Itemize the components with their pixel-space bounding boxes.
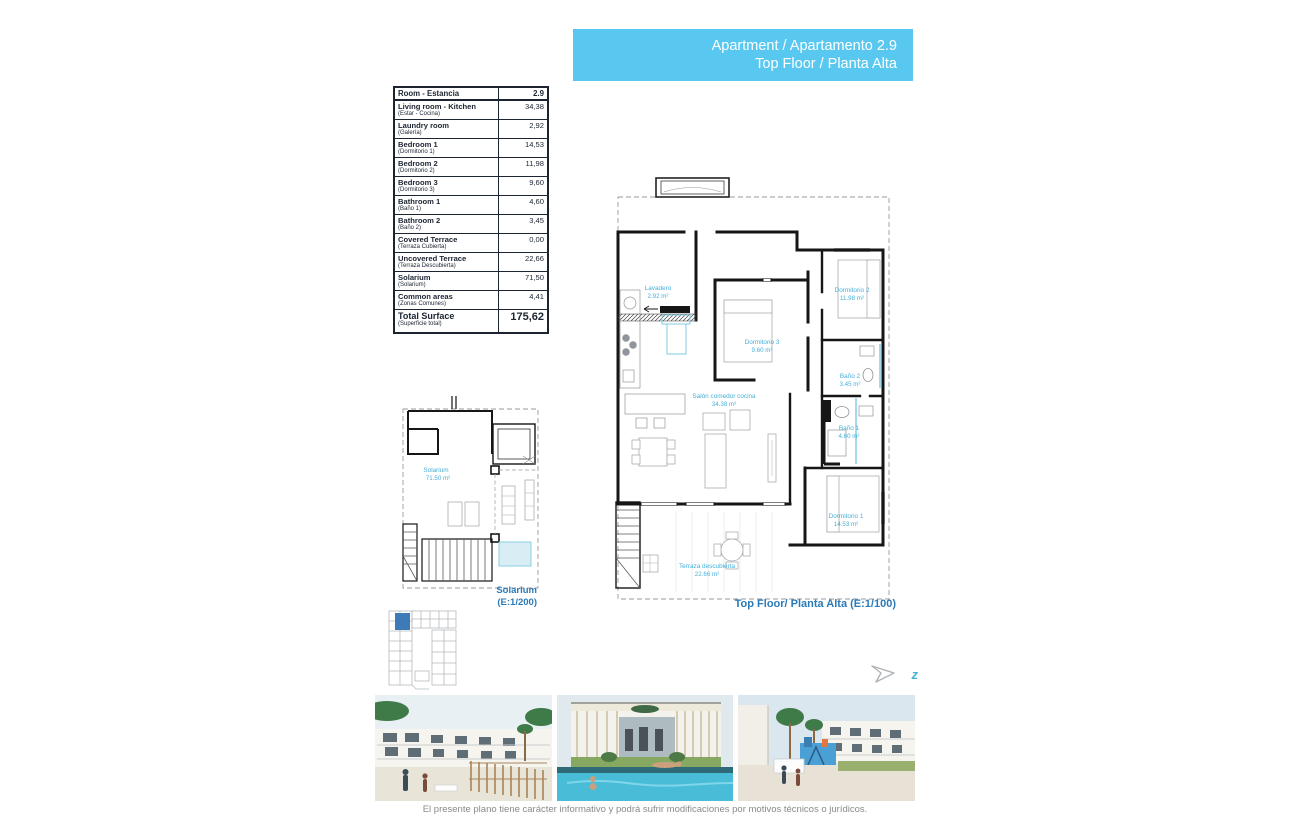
svg-text:Terraza descubierta: Terraza descubierta xyxy=(679,563,736,570)
north-letter: z xyxy=(912,667,919,682)
table-row: Bedroom 1 (Dormitorio 1) 14,53 xyxy=(394,139,548,158)
svg-text:Lavadero: Lavadero xyxy=(645,285,672,292)
total-sublabel: (Superficie total) xyxy=(398,321,495,328)
surface-table-total-row: Total Surface (Superficie total) 175,62 xyxy=(394,310,548,334)
table-row: Uncovered Terrace (Terraza Descubierta) … xyxy=(394,253,548,272)
svg-text:22.66 m²: 22.66 m² xyxy=(695,571,719,578)
room-sublabel: (Solarium) xyxy=(398,282,495,289)
room-area: 22,66 xyxy=(499,253,549,272)
room-sublabel: (Estar - Cocina) xyxy=(398,111,495,118)
room-name: Solarium xyxy=(398,273,495,282)
svg-text:Baño 1: Baño 1 xyxy=(839,425,860,432)
main-floor-plan: Lavadero 2.92 m² Dormitorio 3 9.60 m² Do… xyxy=(612,172,897,602)
room-sublabel: (Baño 2) xyxy=(398,225,495,232)
room-area: 11,98 xyxy=(499,158,549,177)
svg-text:Baño 2: Baño 2 xyxy=(840,373,861,380)
room-area: 71,50 xyxy=(499,272,549,291)
table-row: Laundry room (Galería) 2,92 xyxy=(394,120,548,139)
solarium-walls xyxy=(408,411,535,464)
svg-text:Salón comedor cocina: Salón comedor cocina xyxy=(692,393,756,400)
room-name: Living room - Kitchen xyxy=(398,102,495,111)
solarium-pool-edge xyxy=(499,542,531,566)
table-header-unit: 2.9 xyxy=(499,87,549,100)
table-row: Bedroom 2 (Dormitorio 2) 11,98 xyxy=(394,158,548,177)
table-row: Bathroom 1 (Baño 1) 4,60 xyxy=(394,196,548,215)
room-area: 34,38 xyxy=(499,100,549,120)
table-row: Common areas (Zonas Comunes) 4,41 xyxy=(394,291,548,310)
render-photos xyxy=(375,695,915,801)
solarium-furniture xyxy=(448,480,534,526)
key-plan-highlight xyxy=(395,613,410,630)
total-value: 175,62 xyxy=(499,310,549,334)
svg-text:2.92 m²: 2.92 m² xyxy=(648,293,669,300)
svg-text:Dormitorio 3: Dormitorio 3 xyxy=(745,339,780,346)
room-sublabel: (Dormitorio 1) xyxy=(398,149,495,156)
photo-playground xyxy=(738,695,915,801)
room-area: 14,53 xyxy=(499,139,549,158)
room-sublabel: (Terraza Descubierta) xyxy=(398,263,495,270)
room-name: Common areas xyxy=(398,292,495,301)
table-row: Solarium (Solarium) 71,50 xyxy=(394,272,548,291)
table-row: Bedroom 3 (Dormitorio 3) 9,60 xyxy=(394,177,548,196)
room-sublabel: (Terraza Cubierta) xyxy=(398,244,495,251)
room-sublabel: (Dormitorio 2) xyxy=(398,168,495,175)
svg-text:Dormitorio 1: Dormitorio 1 xyxy=(829,513,864,520)
table-row: Bathroom 2 (Baño 2) 3,45 xyxy=(394,215,548,234)
total-label: Total Surface xyxy=(398,311,495,321)
solarium-posts xyxy=(491,466,538,542)
laundry-fixtures xyxy=(644,306,690,354)
table-row: Living room - Kitchen (Estar - Cocina) 3… xyxy=(394,100,548,120)
room-sublabel: (Galería) xyxy=(398,130,495,137)
solarium-stairs xyxy=(403,524,492,581)
north-arrow-icon xyxy=(872,666,894,682)
disclaimer-text: El presente plano tiene carácter informa… xyxy=(375,804,915,815)
table-header-room: Room - Estancia xyxy=(394,87,499,100)
room-name: Bedroom 3 xyxy=(398,178,495,187)
terrace xyxy=(676,512,772,592)
solarium-plan: Solarium 71.50 m² xyxy=(390,396,548,592)
room-area: 0,00 xyxy=(499,234,549,253)
table-row: Covered Terrace (Terraza Cubierta) 0,00 xyxy=(394,234,548,253)
svg-text:Solarium: Solarium xyxy=(423,467,448,474)
room-area: 4,41 xyxy=(499,291,549,310)
surface-table: Room - Estancia 2.9 Living room - Kitche… xyxy=(393,86,549,334)
stairs xyxy=(616,502,640,588)
solarium-caption: Solarium (E:1/200) xyxy=(455,585,537,609)
room-name: Bathroom 2 xyxy=(398,216,495,225)
room-name: Laundry room xyxy=(398,121,495,130)
apartment-title: Apartment / Apartamento 2.9 xyxy=(712,37,897,55)
svg-text:9.60 m²: 9.60 m² xyxy=(752,347,773,354)
floor-plan-caption: Top Floor/ Planta Alta (E:1/100) xyxy=(700,598,896,610)
room-name: Bedroom 1 xyxy=(398,140,495,149)
svg-text:14.53 m²: 14.53 m² xyxy=(834,521,858,528)
svg-text:Dormitorio 2: Dormitorio 2 xyxy=(835,287,870,294)
room-name: Bedroom 2 xyxy=(398,159,495,168)
room-area: 3,45 xyxy=(499,215,549,234)
photo-pool-gym xyxy=(557,695,734,801)
svg-text:4.60 m²: 4.60 m² xyxy=(839,433,860,440)
room-sublabel: (Dormitorio 3) xyxy=(398,187,495,194)
site-key-plan xyxy=(383,605,463,693)
surface-table-header: Room - Estancia 2.9 xyxy=(394,87,548,100)
skylight xyxy=(656,178,729,197)
svg-text:34.38 m²: 34.38 m² xyxy=(712,401,736,408)
room-area: 9,60 xyxy=(499,177,549,196)
title-block: Apartment / Apartamento 2.9 Top Floor / … xyxy=(573,29,913,81)
north-arrow: z xyxy=(868,660,918,692)
plan-sheet: Apartment / Apartamento 2.9 Top Floor / … xyxy=(0,0,1290,840)
svg-text:11.98 m²: 11.98 m² xyxy=(840,295,864,302)
room-name: Covered Terrace xyxy=(398,235,495,244)
room-area: 2,92 xyxy=(499,120,549,139)
bathroom-fixtures xyxy=(824,344,880,464)
floor-title: Top Floor / Planta Alta xyxy=(755,55,897,73)
room-sublabel: (Zonas Comunes) xyxy=(398,301,495,308)
room-sublabel: (Baño 1) xyxy=(398,206,495,213)
room-name: Uncovered Terrace xyxy=(398,254,495,263)
photo-building-exterior xyxy=(375,695,552,801)
room-area: 4,60 xyxy=(499,196,549,215)
svg-text:71.50 m²: 71.50 m² xyxy=(426,475,450,482)
room-name: Bathroom 1 xyxy=(398,197,495,206)
svg-text:3.45 m²: 3.45 m² xyxy=(840,381,861,388)
